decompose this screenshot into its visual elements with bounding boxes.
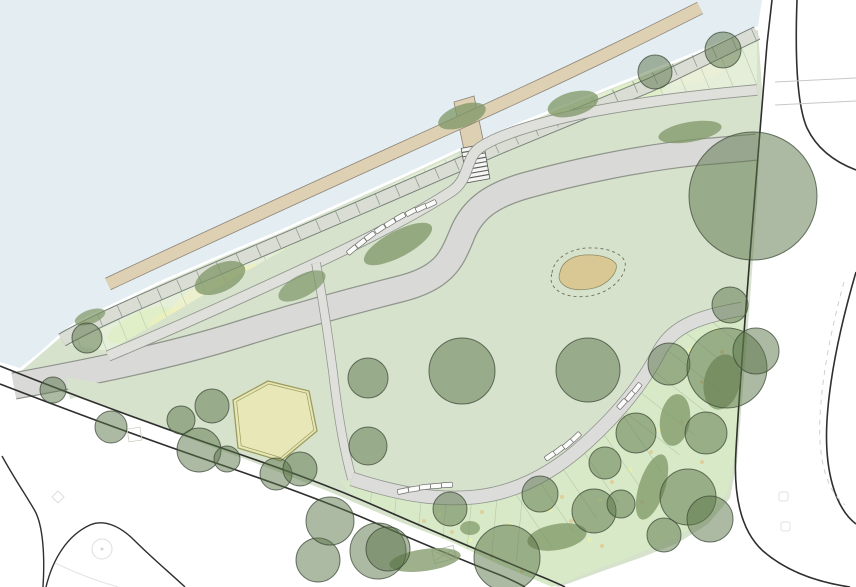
tree	[687, 496, 733, 542]
tree	[638, 55, 672, 89]
park-site-plan	[0, 0, 856, 587]
tree	[283, 452, 317, 486]
tree	[616, 413, 656, 453]
tree	[72, 323, 102, 353]
tree	[306, 497, 354, 545]
driveway-line	[775, 78, 856, 82]
street-faint-line	[55, 563, 118, 587]
tree	[733, 328, 779, 374]
tree	[522, 476, 558, 512]
tree	[40, 377, 66, 403]
tree-large-east	[689, 132, 817, 260]
tree	[433, 492, 467, 526]
tree	[214, 446, 240, 472]
tree	[589, 447, 621, 479]
street-west-curve	[2, 456, 44, 587]
tree	[712, 287, 748, 323]
tree	[177, 428, 221, 472]
street-east-outer	[796, 0, 856, 170]
tree	[348, 358, 388, 398]
tree	[366, 527, 410, 571]
tree	[607, 490, 635, 518]
tree	[647, 518, 681, 552]
street-glyph	[781, 522, 790, 531]
tree	[685, 412, 727, 454]
shrub	[460, 521, 480, 535]
site-plan-canvas	[0, 0, 856, 587]
street-diamond-mark	[52, 491, 64, 503]
tree	[349, 427, 387, 465]
street-curve-dashed	[820, 282, 845, 505]
tree	[429, 338, 495, 404]
tree	[95, 411, 127, 443]
driveway-line	[775, 101, 856, 105]
street-glyph	[779, 492, 788, 501]
tree	[556, 338, 620, 402]
tree	[648, 343, 690, 385]
street-curve-outer	[827, 272, 856, 524]
street-corner-curve	[46, 523, 185, 587]
tree	[705, 32, 741, 68]
tree	[195, 389, 229, 423]
manhole-dot	[101, 548, 104, 551]
tree	[474, 525, 540, 587]
